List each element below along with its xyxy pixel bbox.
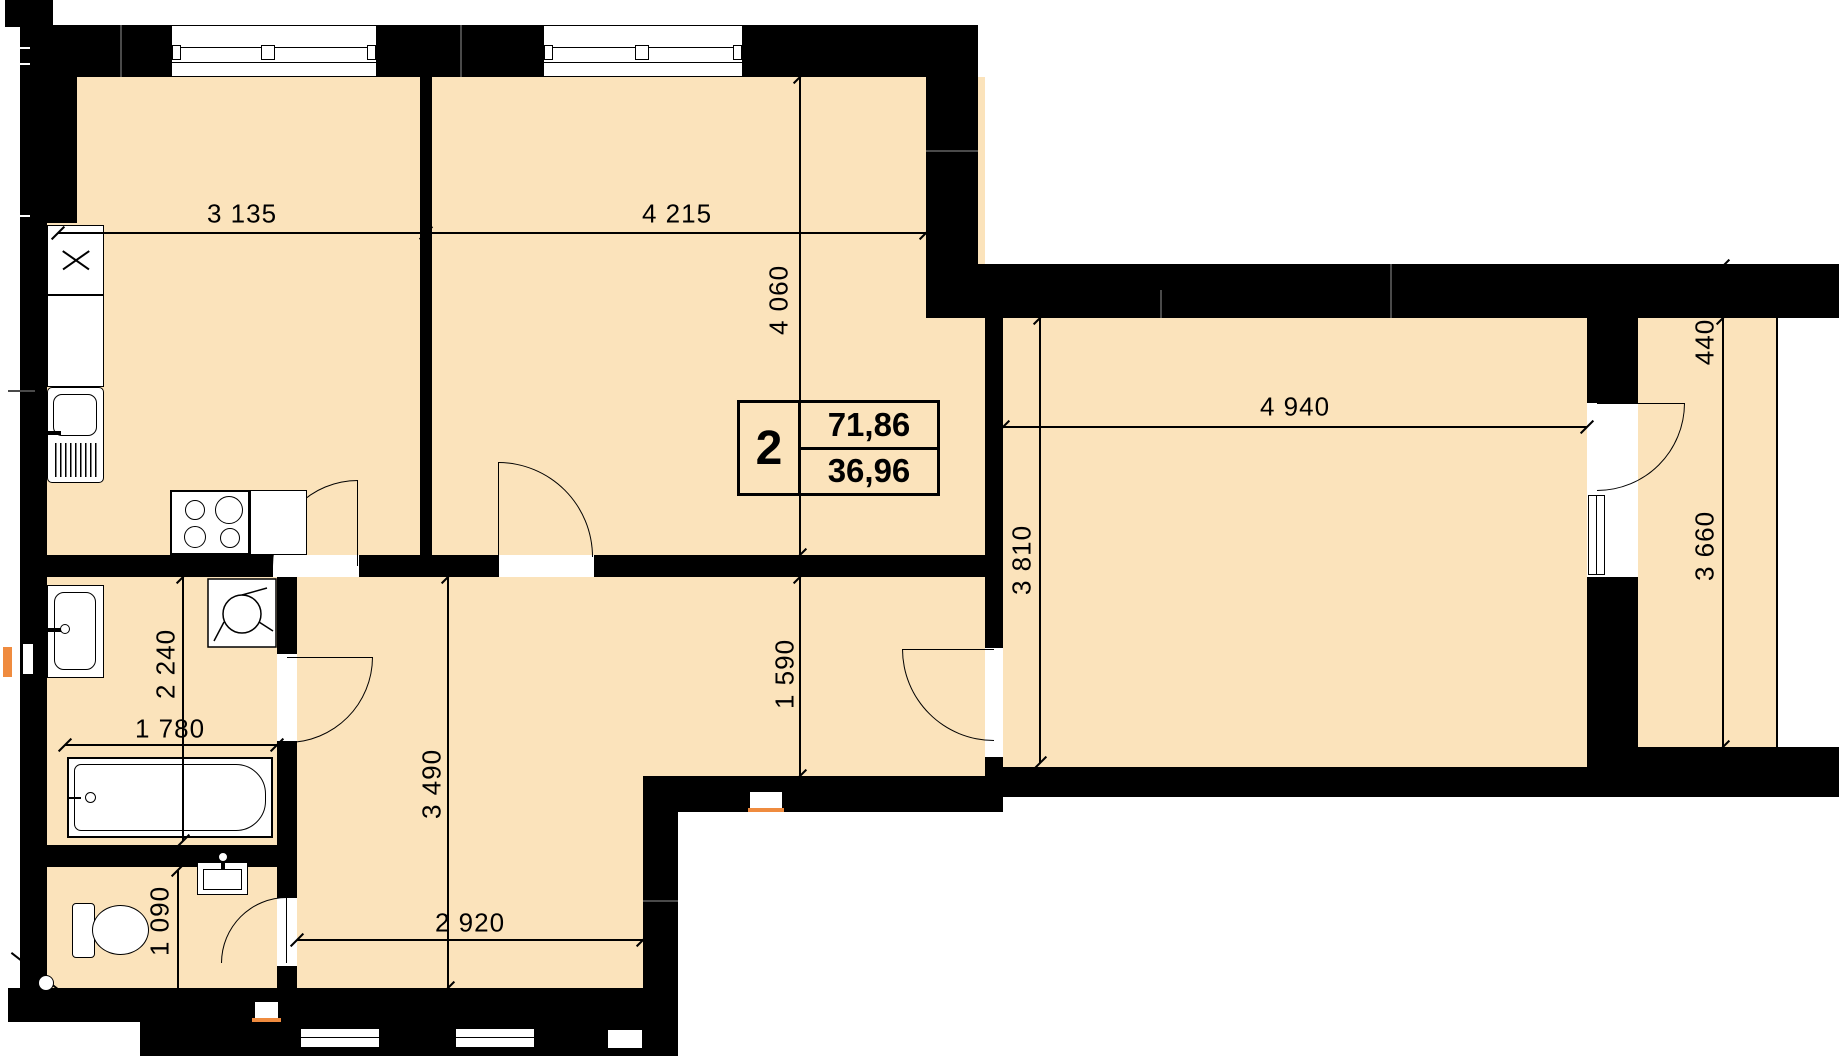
wall-hall-top-b [358,555,498,577]
dim-line [1722,266,1724,747]
door-opening-bedroom [498,555,595,577]
stair-window-line [301,1037,379,1038]
wall-hall-bottom [643,776,1003,812]
sink-bowl [53,394,97,436]
dim-label-bathroom-depth: 2 240 [151,629,182,699]
window-kitchen [172,25,376,77]
dim-line [58,232,926,234]
dim-label-balcony-length: 3 660 [1690,511,1721,581]
sink-faucet [41,431,61,435]
window-jamb [172,45,181,60]
wall-bath-hall-c [277,965,297,988]
bathtub-faucet-stem [69,797,81,799]
window-mullion [635,45,649,60]
window-mullion [261,45,275,60]
washbasin-icon [47,585,104,678]
room-living-floor [985,318,1587,767]
wall-panel-gap [8,63,30,65]
stair-inset [608,1030,642,1048]
wall-balcony-door-a [1587,318,1638,403]
burner [185,500,205,520]
dim-line [799,77,801,555]
living-area: 36,96 [801,450,937,494]
floor-plan: 2 71,86 36,96 3 135 4 215 4 060 4 940 3 … [0,0,1839,1056]
stove-icon [170,490,250,555]
dim-label-kitchen-width: 3 135 [207,199,277,230]
dim-label-bedroom-depth: 4 060 [764,265,795,335]
bathtub-inner [74,764,266,831]
wall-kitchen-bedroom-divider [420,77,432,555]
wall-living-top [978,264,1839,318]
wall-living-bottom [1003,767,1839,797]
wall-kitchen-left-inner [47,77,77,223]
burner [215,496,243,524]
riser-circle [38,975,54,991]
unit-stamp: 2 71,86 36,96 [737,400,940,496]
hall-threshold-orange [748,808,784,812]
room-count: 2 [740,403,801,493]
wall-panel-gap [8,47,30,49]
toilet-bowl [92,905,149,955]
dim-line [177,870,179,999]
balcony-outer-edge [1776,318,1778,747]
stair-window [300,1028,380,1048]
sink-drainboard [55,443,97,477]
dim-label-wc-depth: 1 090 [145,886,176,956]
wc-threshold-orange [252,1018,281,1022]
total-area: 71,86 [801,403,937,450]
wall-joint [120,25,122,77]
wall-hall-top-a [47,555,272,577]
dim-label-bathroom-width: 1 780 [135,714,205,745]
dim-line [1003,426,1587,428]
wc-washbasin-inner [203,869,242,890]
wall-right-upper [926,25,978,318]
dim-line [1039,318,1041,763]
dim-line [182,577,184,841]
dim-label-hall-width: 2 920 [435,908,505,939]
ventilation-fan-icon [207,578,277,648]
burner [220,528,240,548]
wall-joint [926,150,978,152]
bathtub-faucet [85,792,96,803]
wall-top-left-stub [5,0,53,27]
window-jamb [544,45,553,60]
dim-line [297,939,643,941]
left-wall-inset [22,643,34,675]
washbasin-faucet-knob [60,624,70,634]
wall-panel-gap [8,215,30,217]
wall-joint [1160,290,1162,318]
wall-joint [1390,264,1392,318]
window-jamb [733,45,742,60]
wall-joint [460,25,462,77]
kitchen-sink-icon [47,387,104,483]
kitchen-counter-icon [47,295,104,387]
stair-window [455,1028,535,1048]
balcony-window-frame [1596,496,1597,574]
wc-washbasin-icon [197,862,248,895]
bathtub-icon [67,757,273,838]
wall-living-left-a [985,318,1003,647]
window-bedroom [544,25,742,77]
wall-balcony-door-b [1587,577,1638,767]
wall-top-a [30,25,172,77]
dim-label-hall-upper-depth: 1 590 [770,639,801,709]
window-jamb [367,45,376,60]
dim-label-living-depth: 3 810 [1007,525,1038,595]
dim-label-hall-depth: 3 490 [417,749,448,819]
base-cabinet-icon [250,490,307,555]
burner [184,526,206,548]
balcony-window [1588,495,1605,575]
wall-balcony-bottom [1637,747,1839,767]
wall-joint [8,390,35,392]
wall-stair-band [140,1022,678,1056]
wall-wc-bottom [8,988,678,1022]
left-wall-orange-marker [3,647,12,677]
wall-joint [643,900,678,902]
wall-bath-hall-a [277,577,297,653]
dim-label-living-width: 4 940 [1260,392,1330,423]
wall-bath-hall-b [277,740,297,897]
wall-left-outer [20,27,47,1022]
wc-faucet-knob [218,852,228,862]
stair-window-line [456,1037,534,1038]
dim-label-balcony-wall: 440 [1690,319,1721,365]
dim-label-bedroom-width: 4 215 [642,199,712,230]
